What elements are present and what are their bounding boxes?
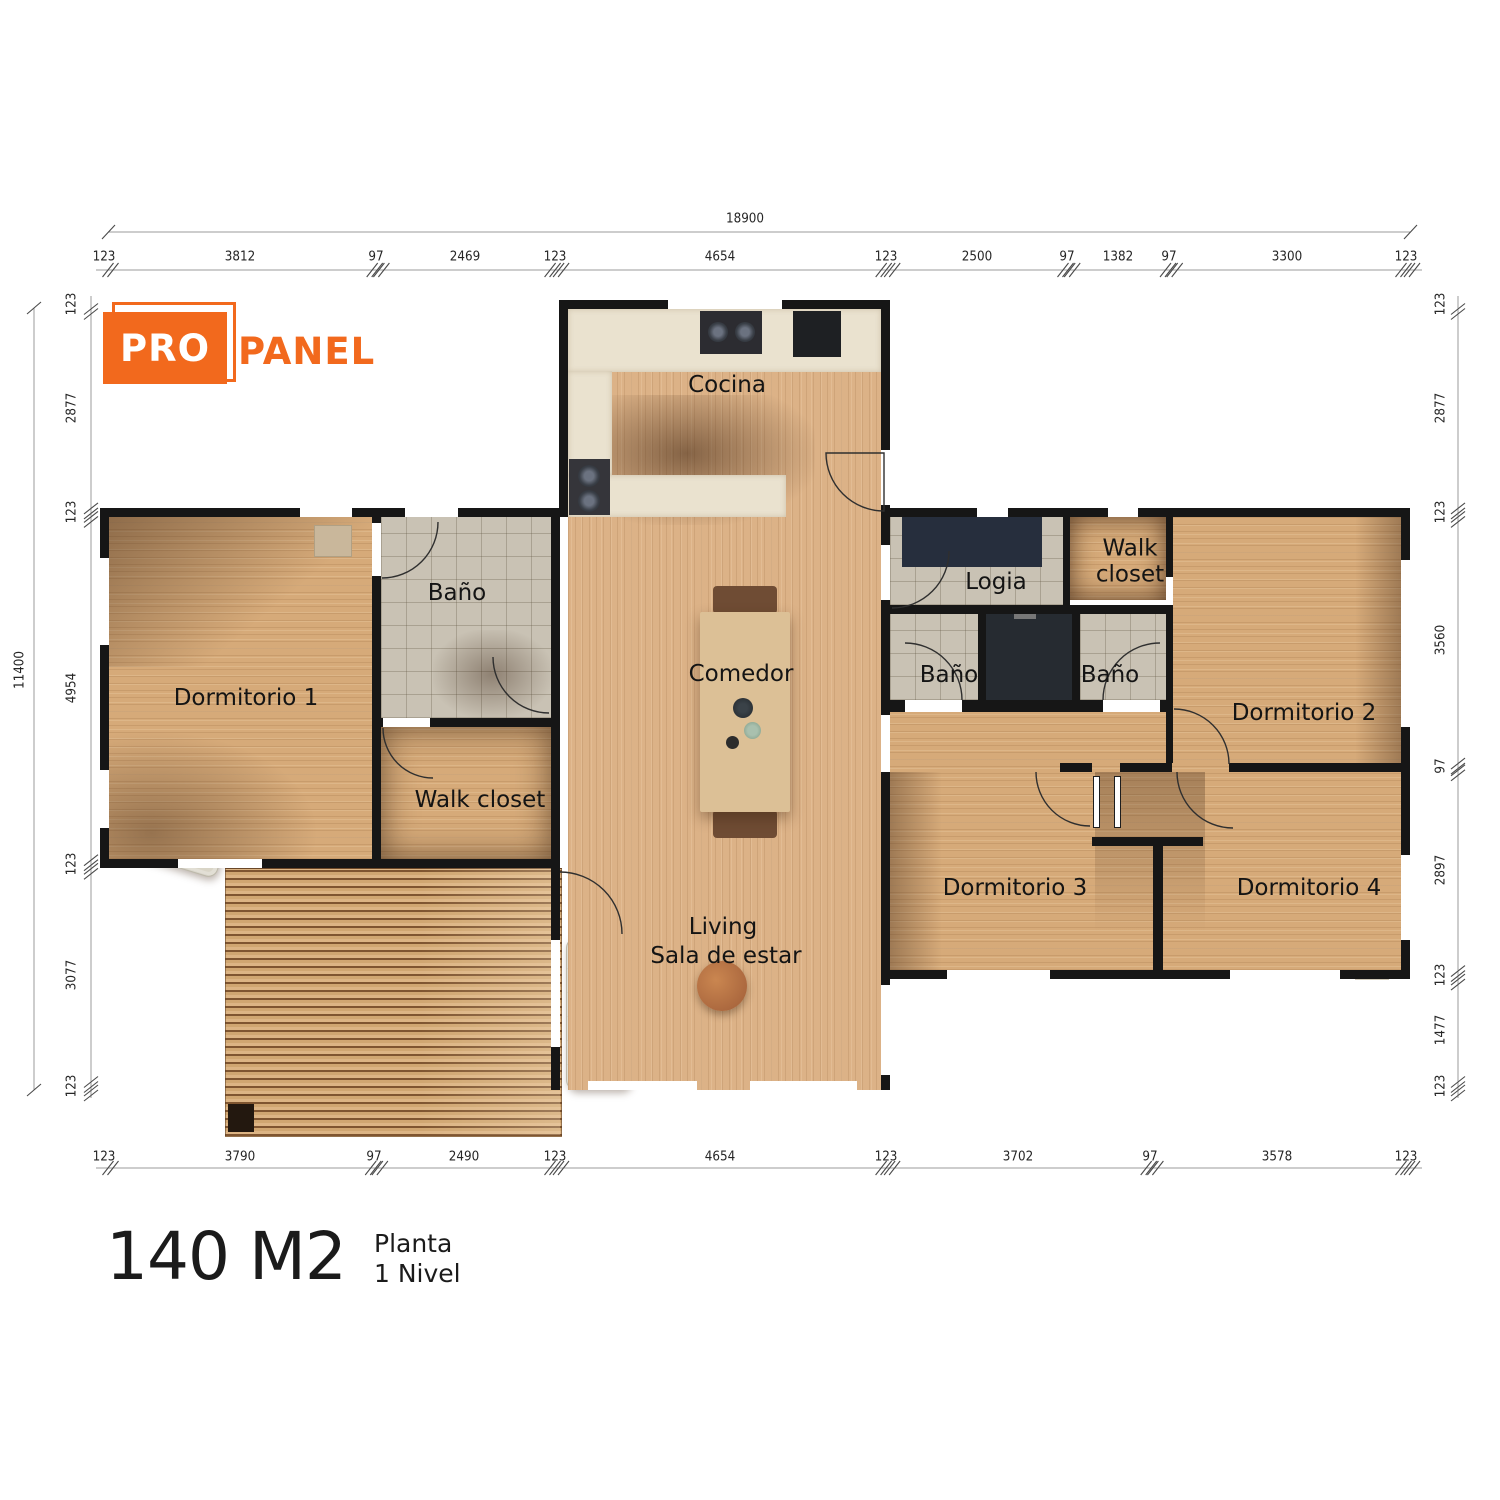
- table-decor-plate: [726, 736, 739, 749]
- room-label-sala-de-estar: Sala de estar: [650, 943, 801, 969]
- window: [1401, 560, 1410, 727]
- room-label-logia: Logia: [965, 569, 1027, 595]
- wall: [372, 718, 383, 727]
- dim-top-9: 1382: [1103, 250, 1133, 265]
- wall: [881, 300, 890, 450]
- dim-left-0: 123: [65, 293, 80, 316]
- window: [1401, 855, 1410, 940]
- window: [300, 508, 352, 517]
- window: [668, 300, 782, 309]
- window: [178, 859, 262, 868]
- window: [100, 558, 109, 645]
- plan-subtitle-line2: 1 Nivel: [374, 1260, 461, 1289]
- dim-top-5: 4654: [705, 250, 735, 265]
- dim-right-2: 123: [1434, 501, 1449, 524]
- dim-right-4: 97: [1434, 758, 1449, 773]
- bed1-side-table: [314, 525, 352, 557]
- window: [100, 770, 109, 828]
- dim-top-4: 123: [544, 250, 567, 265]
- dim-bottom-9: 3578: [1262, 1150, 1292, 1165]
- dim-top-2: 97: [368, 250, 383, 265]
- dim-top-0: 123: [93, 250, 116, 265]
- propanel-logo: PRO: [103, 312, 227, 384]
- window: [588, 1081, 697, 1090]
- wall: [881, 517, 890, 545]
- wall: [881, 508, 1410, 517]
- dim-total-height: 11400: [13, 651, 28, 689]
- wall: [1060, 763, 1092, 772]
- logo-panel-text: PANEL: [238, 330, 375, 373]
- tub-faucet: [1014, 614, 1036, 619]
- floor-deck-terrace: [225, 868, 562, 1137]
- dim-left-4: 123: [65, 853, 80, 876]
- room-label-dormitorio-4: Dormitorio 4: [1237, 875, 1382, 901]
- room-label-living: Living: [689, 914, 757, 940]
- window: [1108, 508, 1138, 517]
- wall: [1120, 763, 1172, 772]
- dim-left-1: 2877: [65, 393, 80, 423]
- dim-top-10: 97: [1161, 250, 1176, 265]
- dining-chair-foot: [713, 810, 777, 838]
- floor-bano-principal: [381, 517, 551, 718]
- dim-bottom-1: 3790: [225, 1150, 255, 1165]
- wall: [881, 600, 890, 715]
- dim-bottom-8: 97: [1142, 1150, 1157, 1165]
- room-label-dormitorio-3: Dormitorio 3: [943, 875, 1088, 901]
- room-label-bano-3: Baño: [1081, 662, 1140, 688]
- room-label-walk-closet-2: Walk closet: [1084, 536, 1176, 589]
- room-label-cocina: Cocina: [688, 372, 766, 398]
- wall: [890, 700, 905, 712]
- cooktop: [700, 311, 762, 354]
- dim-total-width: 18900: [726, 212, 764, 227]
- room-label-comedor: Comedor: [689, 661, 794, 687]
- table-decor-plant: [744, 722, 761, 739]
- dim-bottom-3: 2490: [449, 1150, 479, 1165]
- plan-subtitle-line1: Planta: [374, 1230, 452, 1259]
- wall: [1072, 614, 1080, 700]
- dim-bottom-4: 123: [544, 1150, 567, 1165]
- dim-bottom-10: 123: [1395, 1150, 1418, 1165]
- dim-bottom-7: 3702: [1003, 1150, 1033, 1165]
- window: [750, 1081, 857, 1090]
- wall: [1166, 605, 1173, 763]
- deck-post: [228, 1104, 254, 1132]
- dim-top-8: 97: [1059, 250, 1074, 265]
- dim-left-5: 3077: [65, 960, 80, 990]
- window: [977, 508, 1008, 517]
- dim-top-6: 123: [875, 250, 898, 265]
- wall: [881, 605, 1173, 614]
- dim-right-5: 2897: [1434, 855, 1449, 885]
- logia-backsplash: [902, 517, 1042, 567]
- floor-tub-nook: [986, 614, 1072, 700]
- room-label-dormitorio-1: Dormitorio 1: [174, 685, 319, 711]
- sliding-door-panel[interactable]: [1093, 776, 1100, 828]
- window: [405, 508, 458, 517]
- dim-left-3: 4954: [65, 673, 80, 703]
- plan-area-title: 140 M2: [106, 1218, 346, 1295]
- wall: [1063, 517, 1070, 614]
- logo-pro-text: PRO: [120, 327, 210, 370]
- window: [881, 985, 890, 1075]
- dim-top-1: 3812: [225, 250, 255, 265]
- dim-right-6: 123: [1434, 964, 1449, 987]
- dim-top-11: 3300: [1272, 250, 1302, 265]
- dim-left-2: 123: [65, 501, 80, 524]
- dim-right-1: 2877: [1434, 393, 1449, 423]
- wall: [962, 700, 1103, 712]
- dim-right-3: 3560: [1434, 625, 1449, 655]
- dining-chair-head: [713, 586, 777, 614]
- wall: [372, 517, 381, 523]
- dim-bottom-0: 123: [93, 1150, 116, 1165]
- room-label-bano-2: Baño: [920, 662, 979, 688]
- dim-top-12: 123: [1395, 250, 1418, 265]
- dim-right-7: 1477: [1434, 1015, 1449, 1045]
- wall: [430, 718, 560, 727]
- dim-right-8: 123: [1434, 1075, 1449, 1098]
- window: [1230, 970, 1340, 979]
- oven: [793, 311, 841, 357]
- dim-left-6: 123: [65, 1075, 80, 1098]
- wall: [100, 859, 560, 868]
- wall: [1092, 837, 1203, 846]
- table-decor-bowl: [733, 698, 753, 718]
- wall: [1153, 846, 1163, 979]
- window: [947, 970, 1050, 979]
- room-label-walk-closet-1: Walk closet: [415, 787, 546, 813]
- wall: [978, 614, 986, 700]
- room-label-bano-principal: Baño: [428, 580, 487, 606]
- stove-left: [569, 459, 610, 515]
- room-label-dormitorio-2: Dormitorio 2: [1232, 700, 1377, 726]
- dim-bottom-6: 123: [875, 1150, 898, 1165]
- dim-top-3: 2469: [450, 250, 480, 265]
- dim-right-0: 123: [1434, 293, 1449, 316]
- dim-top-7: 2500: [962, 250, 992, 265]
- wall: [1160, 700, 1166, 712]
- window: [551, 940, 560, 1047]
- dim-bottom-2: 97: [366, 1150, 381, 1165]
- wall: [559, 300, 568, 517]
- wall: [1229, 763, 1410, 772]
- dim-bottom-5: 4654: [705, 1150, 735, 1165]
- sliding-door-panel[interactable]: [1114, 776, 1121, 828]
